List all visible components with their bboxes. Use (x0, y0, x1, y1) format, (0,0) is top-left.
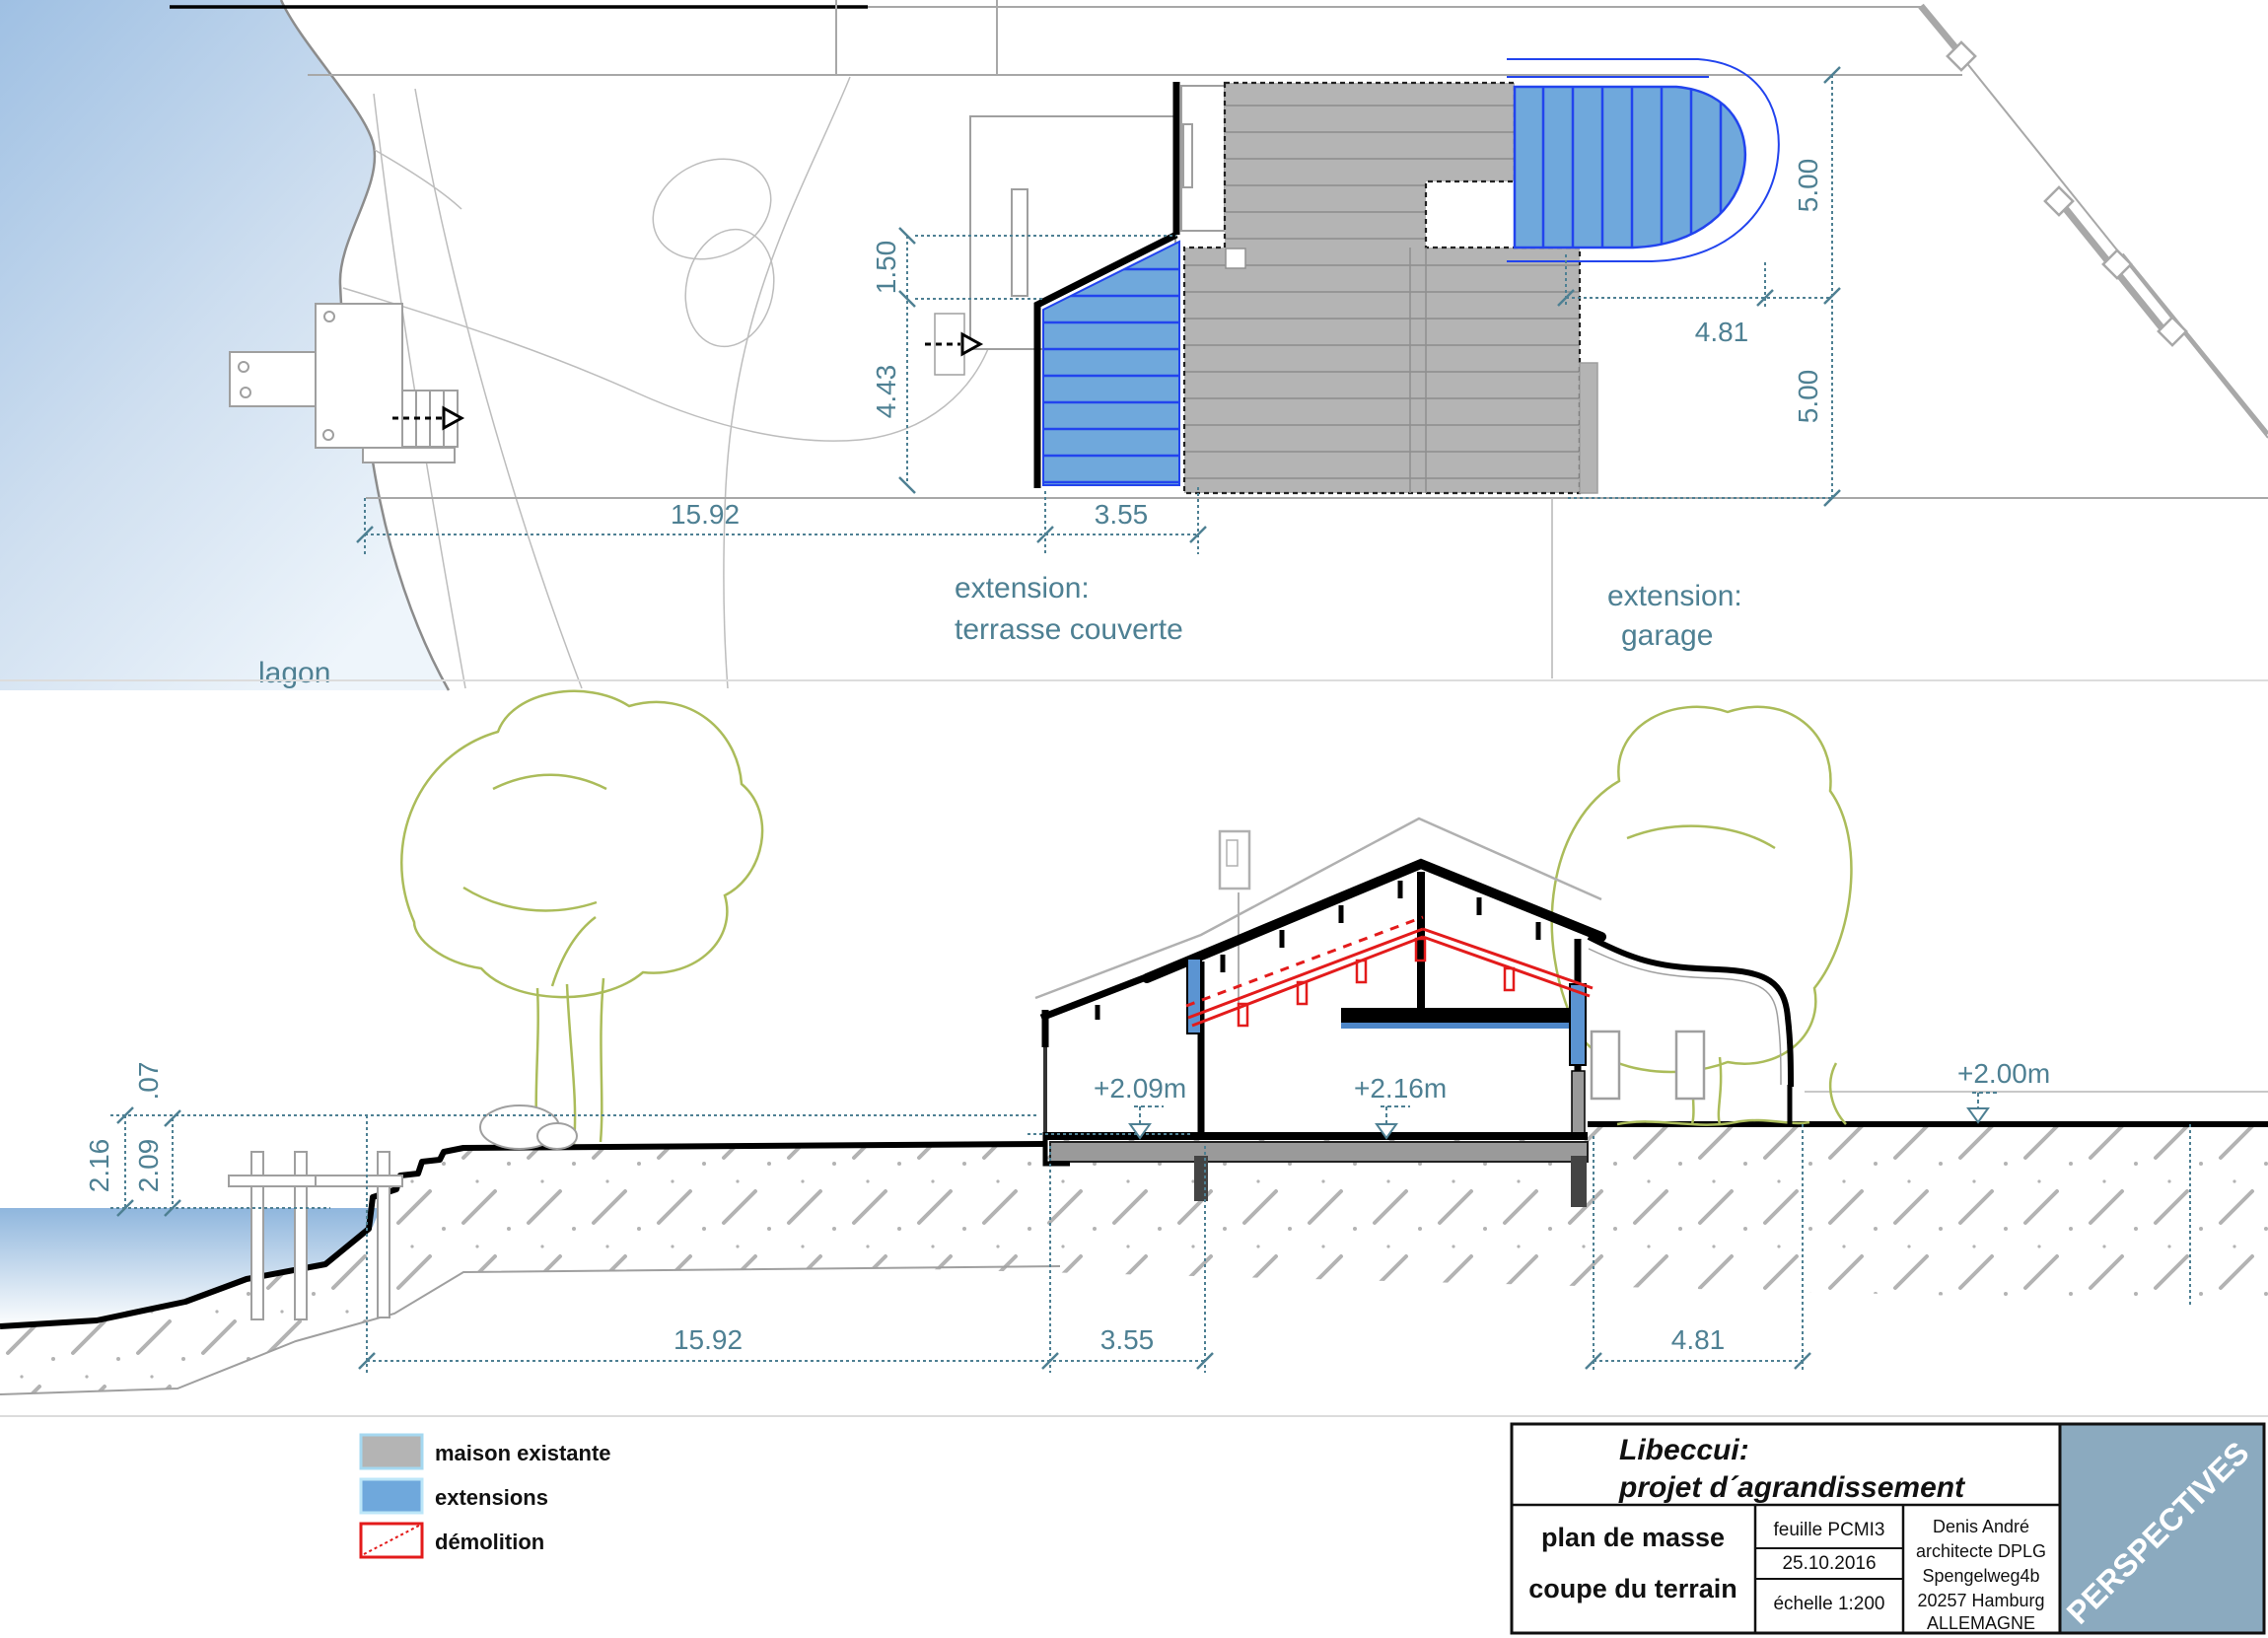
title-block: Libeccui: projet d´agrandissement plan d… (1512, 1424, 2264, 1633)
extension-garage-label-1: extension: (1607, 580, 1742, 612)
architectural-drawing-sheet: 15.92 3.55 1.50 4.43 4.81 5.00 5.00 lag (0, 0, 2268, 1638)
dim-plan-4-43: 4.43 (871, 365, 901, 419)
drawing-type-line2: coupe du terrain (1528, 1574, 1737, 1603)
rock (537, 1123, 577, 1149)
extension-terrace-label-2: terrasse couverte (955, 613, 1183, 646)
legend-swatch-extensions (361, 1479, 422, 1513)
level-house: +2.16m (1354, 1073, 1447, 1104)
large-tree (401, 691, 762, 1149)
architect-name: Denis André (1933, 1517, 2029, 1536)
architect-city: 20257 Hamburg (1917, 1591, 2044, 1610)
project-title-line1: Libeccui: (1619, 1434, 1749, 1466)
level-garden: +2.00m (1957, 1058, 2050, 1089)
legend-label-existing: maison existante (435, 1441, 611, 1465)
property-boundary-diagonal (1921, 6, 2268, 438)
legend-label-extensions: extensions (435, 1485, 548, 1510)
sheet-number: feuille PCMI3 (1774, 1520, 1885, 1540)
dim-plan-5-00-lower: 5.00 (1793, 370, 1823, 424)
legend: maison existante extensions démolition (361, 1435, 611, 1557)
dim-plan-5-00-upper: 5.00 (1793, 159, 1823, 213)
scale: échelle 1:200 (1773, 1594, 1884, 1614)
project-title-line2: projet d´agrandissement (1618, 1471, 1966, 1504)
garage-window (1676, 1032, 1704, 1099)
level-terrace: +2.09m (1094, 1073, 1186, 1104)
survey-marker-icon (2159, 318, 2186, 345)
garage-window (1592, 1032, 1619, 1099)
dim-plan-1-50: 1.50 (871, 241, 901, 295)
lagoon-label: lagon (258, 657, 330, 689)
drawing-type-line1: plan de masse (1541, 1523, 1725, 1552)
date: 25.10.2016 (1782, 1553, 1876, 1574)
architect-country: ALLEMAGNE (1927, 1613, 2035, 1633)
survey-marker-icon (2103, 250, 2131, 278)
garage-pool-extension-plan (1507, 59, 1779, 261)
dim-plan-3-55: 3.55 (1095, 499, 1149, 530)
dim-plan-4-81: 4.81 (1695, 317, 1749, 347)
site-plan: 15.92 3.55 1.50 4.43 4.81 5.00 5.00 lag (0, 0, 2268, 690)
dim-section-4-81: 4.81 (1671, 1324, 1726, 1355)
architect-title: architecte DPLG (1916, 1541, 2046, 1561)
dim-section-15-92: 15.92 (673, 1324, 743, 1355)
dim-section-3-55: 3.55 (1100, 1324, 1155, 1355)
dim-plan-15-92: 15.92 (671, 499, 740, 530)
terrain-contours (343, 77, 1001, 688)
extension-terrace-label-1: extension: (955, 572, 1090, 605)
architect-street: Spengelweg4b (1922, 1566, 2039, 1586)
floor-beam (1341, 1008, 1573, 1023)
extension-garage-label-2: garage (1621, 619, 1713, 652)
legend-label-demolition: démolition (435, 1530, 544, 1554)
legend-swatch-existing (361, 1435, 422, 1468)
level-triangle-icon (1968, 1108, 1988, 1122)
garage-section (1589, 937, 1791, 1124)
house-side-strip (1580, 363, 1597, 493)
main-roof (1147, 864, 1601, 978)
dim-section-2-16: 2.16 (84, 1139, 114, 1193)
terrain-section: +2.09m +2.16m +2.00m 2.16 2.09 .07 (0, 691, 2268, 1394)
dim-section-0-07: .07 (133, 1062, 164, 1101)
drawing-canvas: 15.92 3.55 1.50 4.43 4.81 5.00 5.00 lag (0, 0, 2268, 1638)
plan-labels: lagon extension: terrasse couverte exten… (258, 572, 1742, 689)
dim-section-2-09: 2.09 (133, 1139, 164, 1193)
window-section (1570, 984, 1586, 1065)
